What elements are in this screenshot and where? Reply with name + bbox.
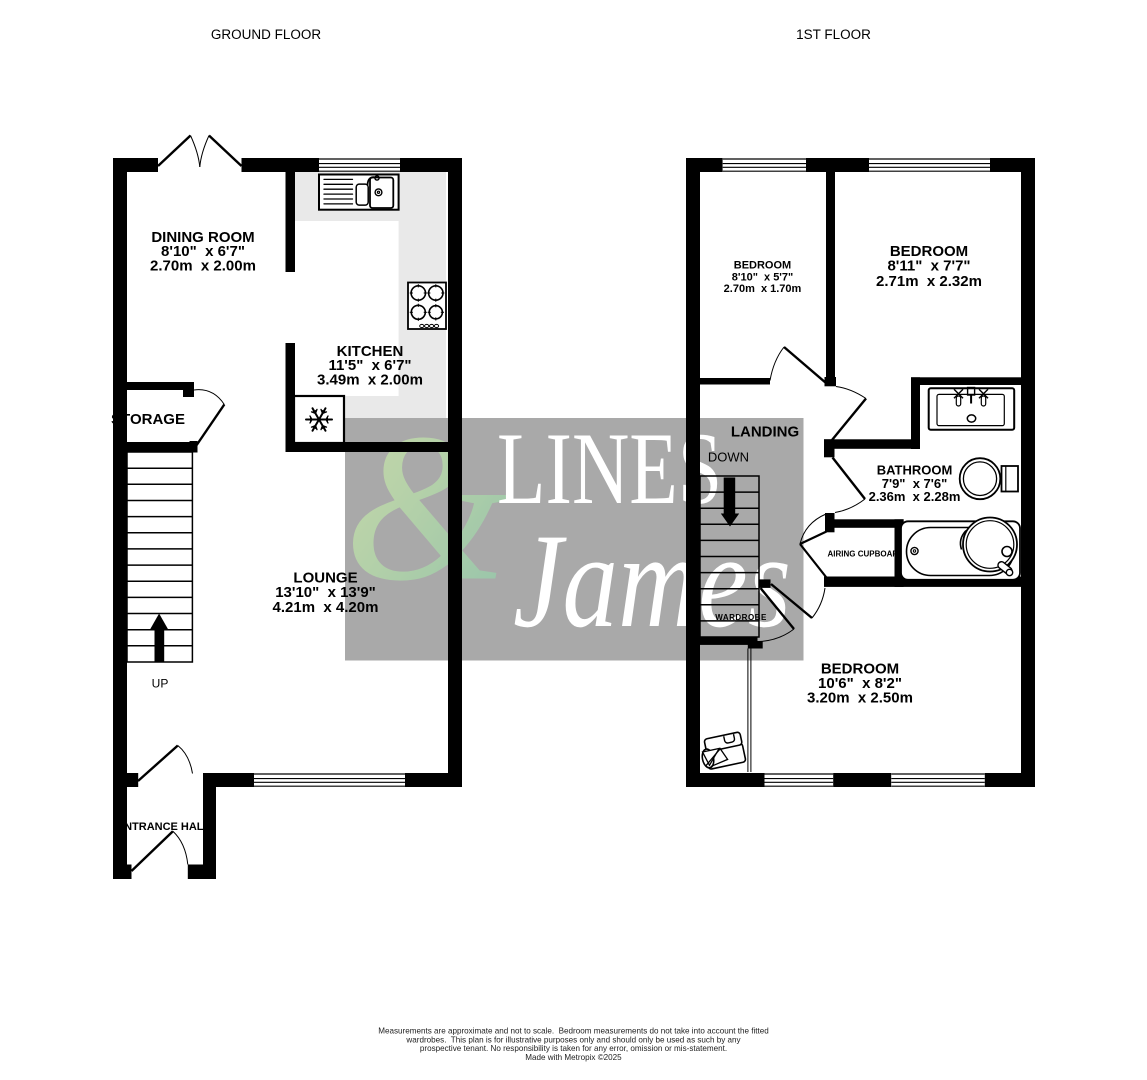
svg-text:Made with Metropix ©2025: Made with Metropix ©2025: [525, 1053, 622, 1062]
svg-text:4.21m x 4.20m: 4.21m x 4.20m: [273, 599, 379, 616]
svg-text:prospective tenant. No respons: prospective tenant. No responsibility is…: [420, 1044, 727, 1053]
svg-text:2.71m x 2.32m: 2.71m x 2.32m: [876, 273, 982, 290]
svg-text:UP: UP: [152, 676, 169, 690]
svg-text:LANDING: LANDING: [731, 424, 799, 441]
svg-text:AIRING CUPBOARD: AIRING CUPBOARD: [828, 550, 905, 559]
svg-text:Measurements are approximate a: Measurements are approximate and not to …: [378, 1027, 769, 1036]
svg-text:2.36m x 2.28m: 2.36m x 2.28m: [869, 489, 961, 504]
svg-text:2.70m x 1.70m: 2.70m x 1.70m: [724, 283, 802, 295]
svg-text:8'11" x 7'7": 8'11" x 7'7": [887, 258, 970, 275]
svg-text:BEDROOM: BEDROOM: [734, 260, 791, 272]
svg-text:GROUND FLOOR: GROUND FLOOR: [211, 27, 322, 42]
svg-text:8'10" x 5'7": 8'10" x 5'7": [732, 271, 794, 283]
svg-text:2.70m x 2.00m: 2.70m x 2.00m: [150, 258, 256, 275]
svg-text:3.20m x 2.50m: 3.20m x 2.50m: [807, 690, 913, 707]
svg-text:James: James: [513, 507, 791, 656]
svg-text:1ST FLOOR: 1ST FLOOR: [796, 27, 871, 42]
svg-text:ENTRANCE HALL: ENTRANCE HALL: [117, 821, 211, 833]
svg-text:3.49m x 2.00m: 3.49m x 2.00m: [317, 372, 423, 389]
svg-text:DOWN: DOWN: [708, 450, 749, 465]
